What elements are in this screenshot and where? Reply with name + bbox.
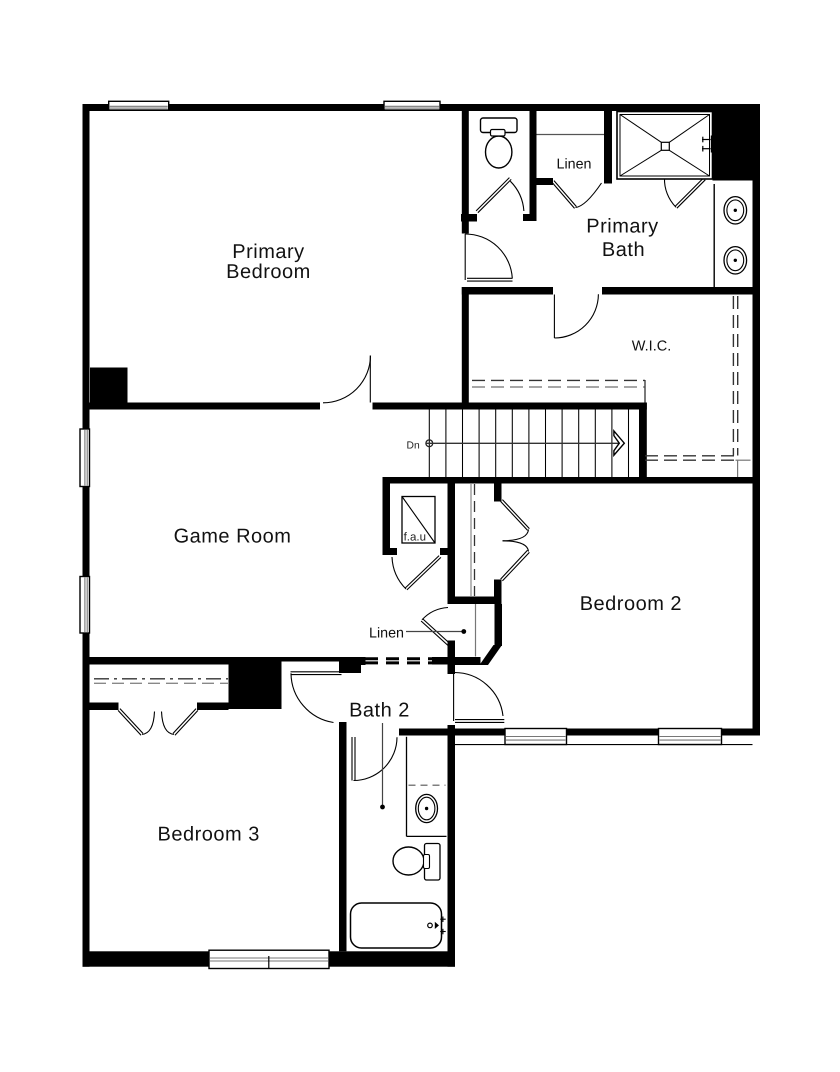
svg-text:Linen: Linen <box>557 156 592 172</box>
svg-text:Game Room: Game Room <box>174 526 292 548</box>
svg-text:Primary: Primary <box>586 216 658 238</box>
svg-text:Bedroom: Bedroom <box>226 261 311 283</box>
svg-text:Bath 2: Bath 2 <box>349 700 410 722</box>
svg-text:Primary: Primary <box>232 241 304 263</box>
svg-text:Linen: Linen <box>369 626 404 642</box>
svg-text:W.I.C.: W.I.C. <box>632 339 671 355</box>
svg-text:f.a.u: f.a.u <box>404 532 426 544</box>
svg-text:Bath: Bath <box>602 239 645 261</box>
svg-text:Bedroom 3: Bedroom 3 <box>158 824 260 846</box>
svg-text:Bedroom 2: Bedroom 2 <box>580 593 682 615</box>
svg-text:Dn: Dn <box>407 440 420 451</box>
